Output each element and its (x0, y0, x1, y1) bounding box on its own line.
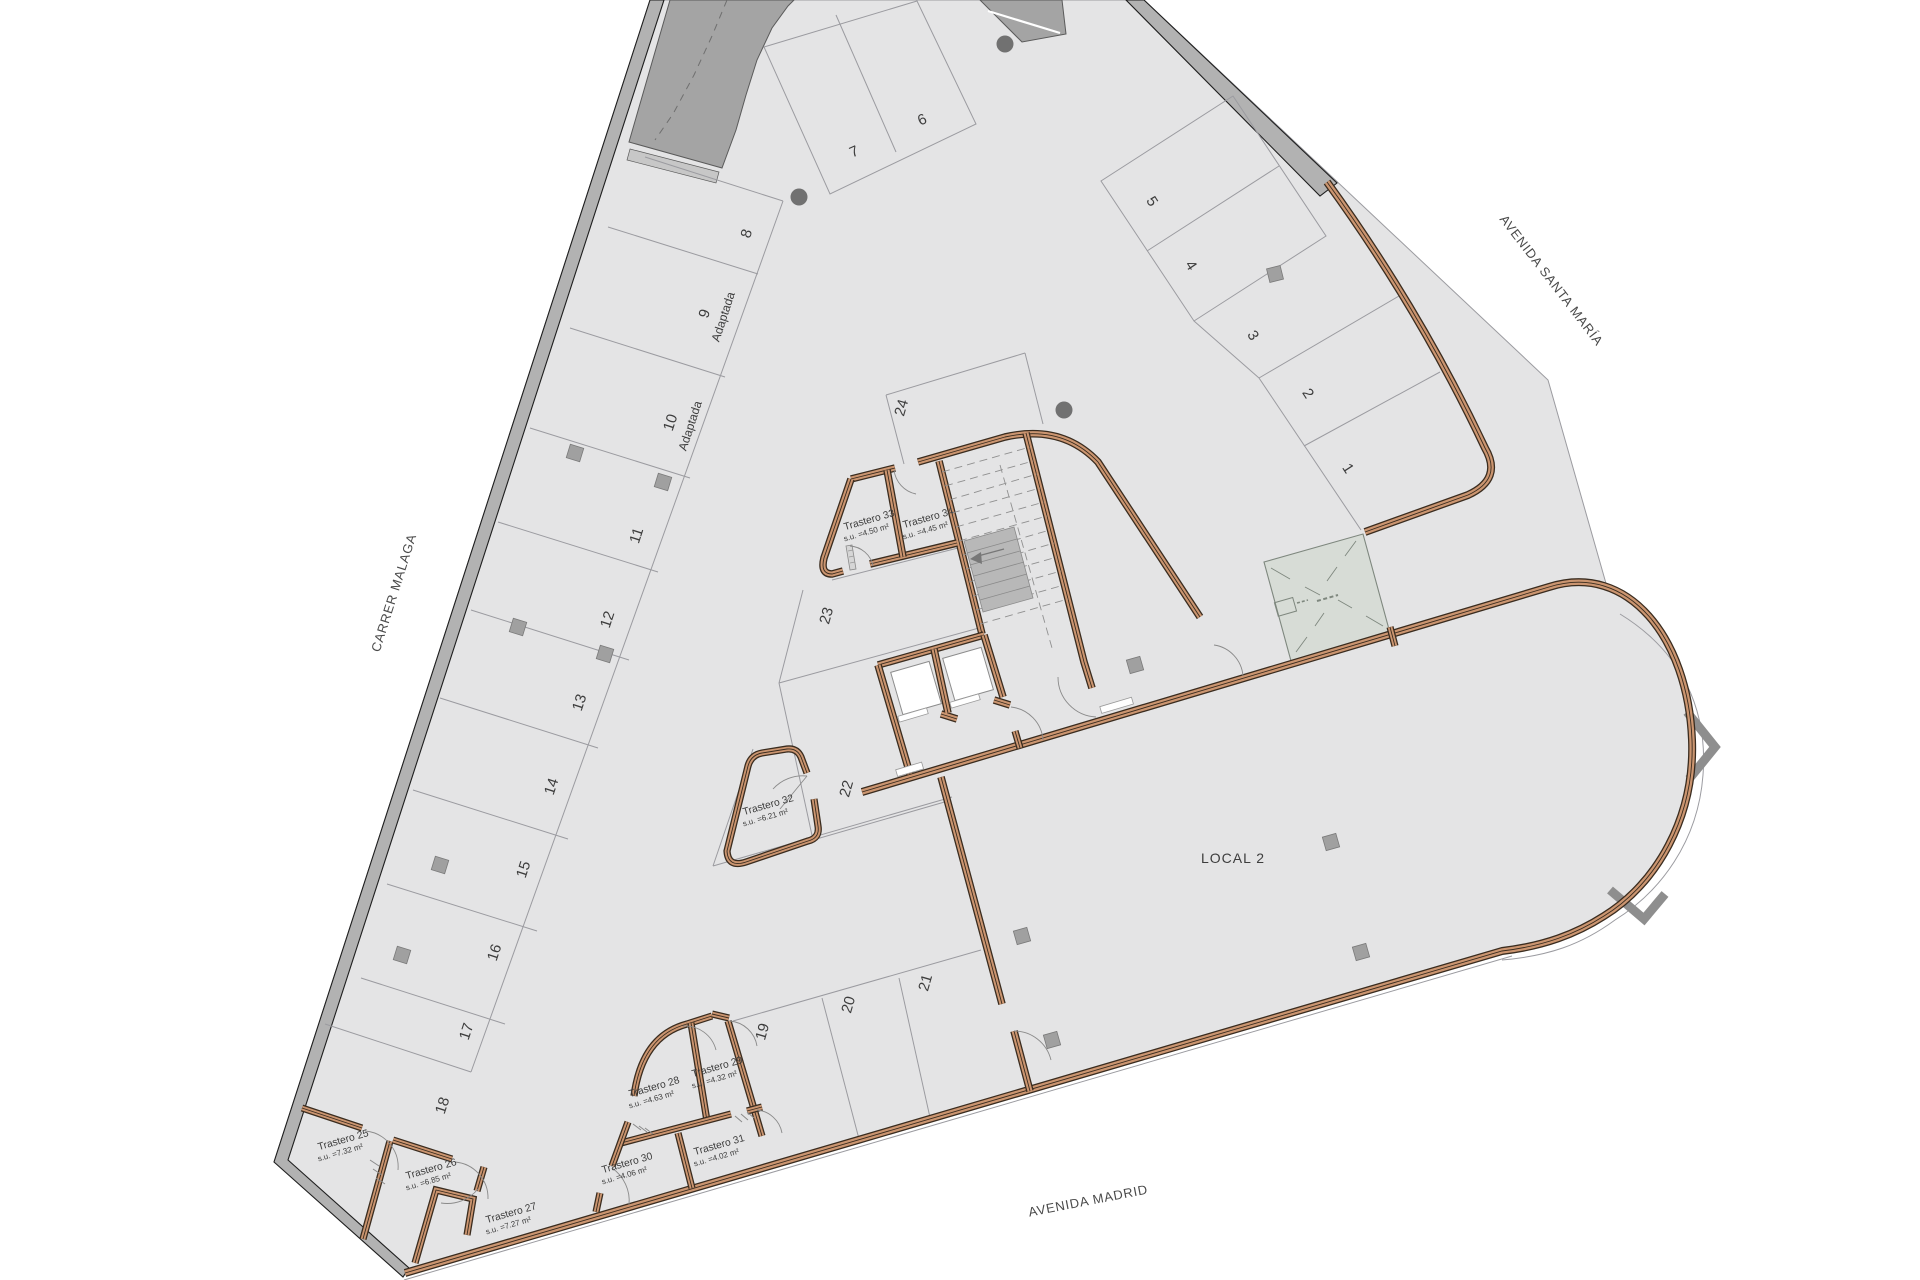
svg-text:CARRER MALAGA: CARRER MALAGA (368, 532, 419, 654)
svg-text:LOCAL 2: LOCAL 2 (1201, 850, 1265, 866)
svg-text:AVENIDA MADRID: AVENIDA MADRID (1027, 1182, 1149, 1220)
svg-text:AVENIDA SANTA MARÍA: AVENIDA SANTA MARÍA (1497, 212, 1607, 349)
